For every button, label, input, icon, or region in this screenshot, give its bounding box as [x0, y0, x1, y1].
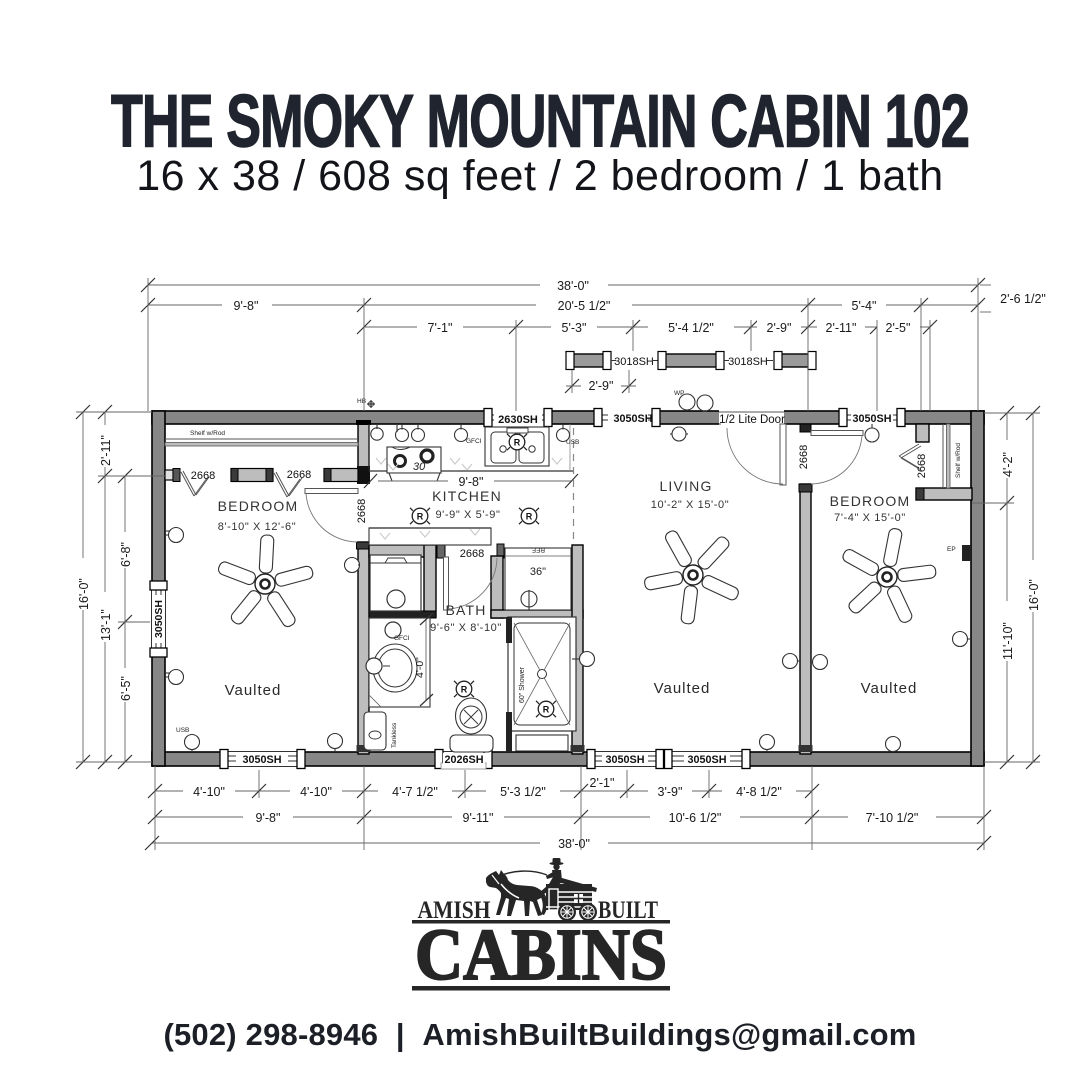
svg-text:R: R	[514, 438, 521, 448]
svg-text:3050SH: 3050SH	[242, 754, 281, 766]
svg-text:2630SH: 2630SH	[498, 414, 538, 426]
svg-text:Vaulted: Vaulted	[861, 680, 918, 697]
svg-text:BEDROOM: BEDROOM	[830, 493, 911, 509]
svg-text:2668: 2668	[916, 454, 928, 478]
svg-text:2'-11": 2'-11"	[99, 435, 113, 466]
svg-text:3050SH: 3050SH	[153, 600, 165, 638]
svg-text:2'-5": 2'-5"	[886, 321, 911, 335]
svg-text:30: 30	[413, 461, 426, 473]
svg-text:9'-8": 9'-8"	[459, 475, 484, 489]
svg-text:5'-3": 5'-3"	[562, 321, 587, 335]
svg-text:3050SH: 3050SH	[687, 754, 726, 766]
svg-text:3018SH: 3018SH	[728, 356, 768, 368]
svg-text:2668: 2668	[356, 499, 368, 523]
svg-text:38'-0": 38'-0"	[557, 279, 589, 293]
svg-text:BEDROOM: BEDROOM	[218, 498, 299, 514]
svg-text:Vaulted: Vaulted	[654, 680, 711, 697]
svg-text:2'-11": 2'-11"	[826, 321, 857, 335]
svg-text:36": 36"	[530, 566, 546, 578]
svg-text:2668: 2668	[798, 445, 810, 469]
svg-text:16'-0": 16'-0"	[77, 578, 91, 610]
svg-text:3'-9": 3'-9"	[658, 785, 683, 799]
svg-text:CABINS: CABINS	[415, 914, 667, 995]
svg-text:60" Shower: 60" Shower	[519, 666, 526, 703]
svg-text:GFCI: GFCI	[466, 438, 482, 445]
svg-text:2'-9": 2'-9"	[767, 321, 792, 335]
svg-text:10'-6 1/2": 10'-6 1/2"	[669, 811, 722, 825]
svg-text:REF.: REF.	[531, 546, 545, 553]
svg-text:3050SH: 3050SH	[613, 413, 652, 425]
svg-text:5'-4 1/2": 5'-4 1/2"	[668, 321, 714, 335]
svg-text:3050SH: 3050SH	[852, 413, 891, 425]
svg-text:1/2 Lite Door: 1/2 Lite Door	[719, 414, 785, 426]
svg-text:Vaulted: Vaulted	[225, 682, 282, 699]
svg-text:13'-1": 13'-1"	[99, 609, 113, 641]
svg-text:4'-0": 4'-0"	[414, 657, 426, 678]
svg-text:HB: HB	[357, 398, 366, 405]
svg-text:9'-9" X 5'-9": 9'-9" X 5'-9"	[435, 509, 500, 521]
svg-text:4'-10": 4'-10"	[193, 785, 225, 799]
svg-text:2026SH: 2026SH	[444, 754, 483, 766]
svg-text:2668: 2668	[460, 548, 484, 560]
svg-text:38'-0": 38'-0"	[558, 837, 590, 851]
svg-text:GFCI: GFCI	[394, 635, 410, 642]
svg-text:6'-8": 6'-8"	[119, 542, 133, 567]
svg-text:20'-5 1/2": 20'-5 1/2"	[558, 299, 611, 313]
svg-text:WP: WP	[674, 390, 684, 397]
svg-text:Shelf w/Rod: Shelf w/Rod	[190, 430, 225, 437]
svg-text:11'-10": 11'-10"	[1001, 622, 1015, 660]
svg-text:4'-8 1/2": 4'-8 1/2"	[736, 785, 782, 799]
svg-text:EP: EP	[947, 546, 956, 553]
svg-text:USB: USB	[176, 727, 189, 734]
svg-text:USB: USB	[566, 439, 579, 446]
svg-text:KITCHEN: KITCHEN	[432, 488, 502, 504]
svg-text:Tankless: Tankless	[391, 722, 398, 748]
svg-text:2'-1": 2'-1"	[590, 776, 615, 790]
svg-text:BATH: BATH	[445, 602, 486, 618]
svg-text:9'-8": 9'-8"	[256, 811, 281, 825]
svg-text:4'-7 1/2": 4'-7 1/2"	[392, 785, 438, 799]
svg-text:3050SH: 3050SH	[605, 754, 644, 766]
svg-text:16'-0": 16'-0"	[1027, 579, 1041, 611]
svg-text:3018SH: 3018SH	[614, 356, 654, 368]
svg-text:7'-4" X 15'-0": 7'-4" X 15'-0"	[834, 512, 906, 524]
svg-text:8'-10" X 12'-6": 8'-10" X 12'-6"	[218, 521, 297, 533]
svg-text:2'-9": 2'-9"	[589, 379, 614, 393]
svg-text:5'-3 1/2": 5'-3 1/2"	[500, 785, 546, 799]
svg-text:4'-2": 4'-2"	[1001, 452, 1015, 477]
svg-text:9'-6" X 8'-10": 9'-6" X 8'-10"	[430, 622, 502, 634]
svg-text:2668: 2668	[191, 470, 215, 482]
svg-text:4'-10": 4'-10"	[300, 785, 332, 799]
svg-text:6'-5": 6'-5"	[119, 676, 133, 701]
svg-text:Shelf w/Rod: Shelf w/Rod	[955, 443, 962, 478]
svg-text:7'-1": 7'-1"	[428, 321, 453, 335]
svg-text:10'-2" X 15'-0": 10'-2" X 15'-0"	[651, 499, 730, 511]
svg-text:7'-10 1/2": 7'-10 1/2"	[866, 811, 919, 825]
svg-text:9'-8": 9'-8"	[234, 299, 259, 313]
svg-text:LIVING: LIVING	[659, 478, 712, 494]
svg-text:9'-11": 9'-11"	[463, 811, 494, 825]
svg-text:2'-6 1/2": 2'-6 1/2"	[1000, 292, 1046, 306]
svg-text:5'-4": 5'-4"	[852, 299, 877, 313]
svg-text:2668: 2668	[287, 469, 311, 481]
